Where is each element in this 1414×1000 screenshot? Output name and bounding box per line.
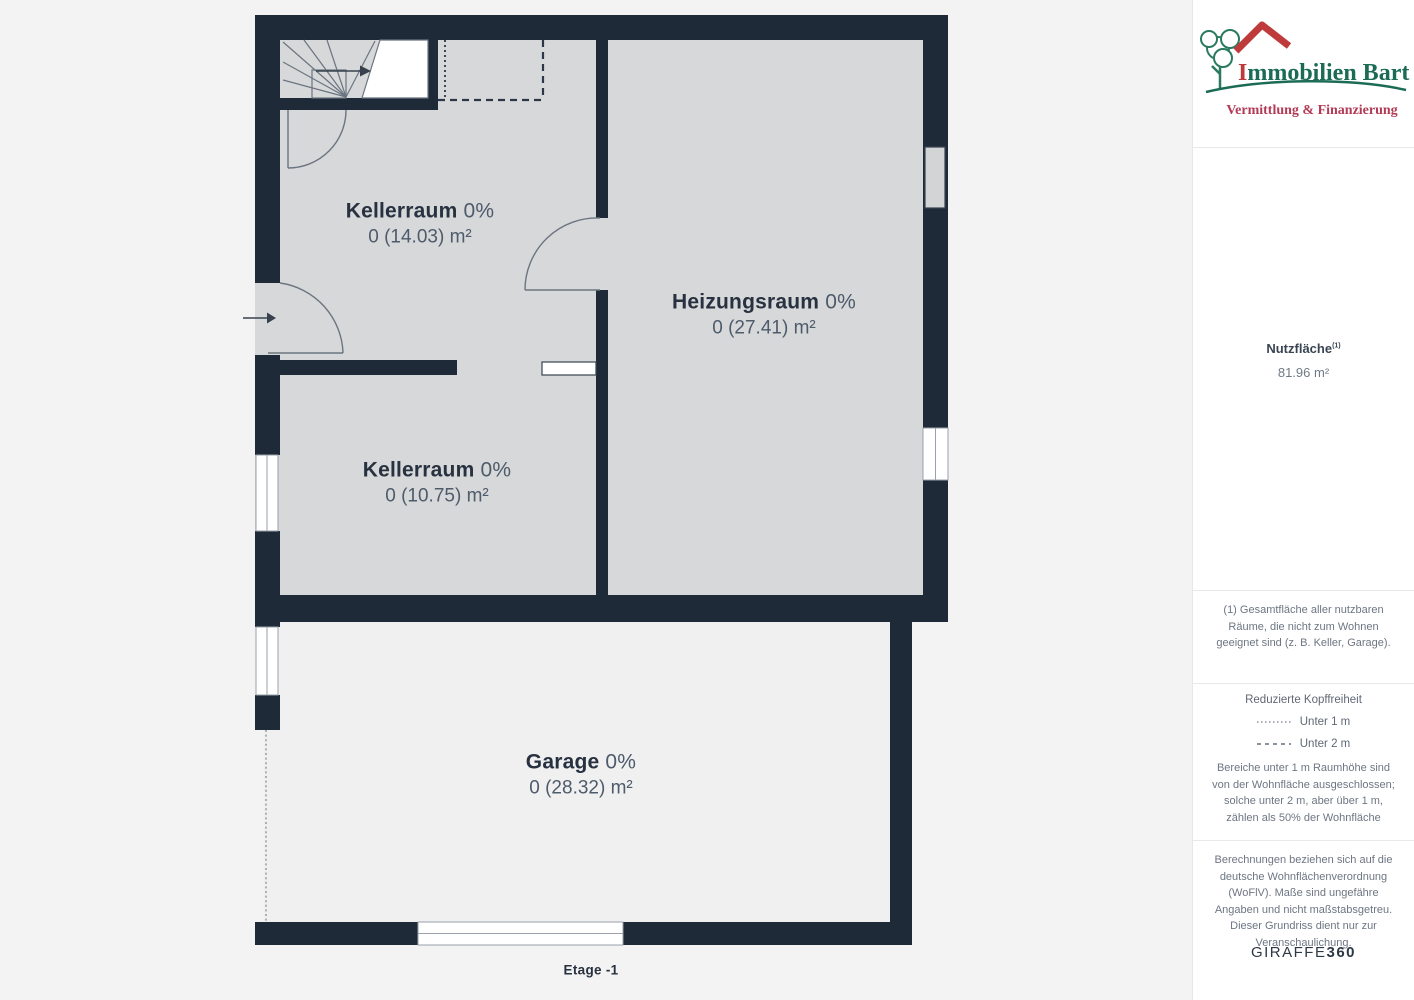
area-summary: Nutzfläche(1) 81.96 m²: [1193, 341, 1414, 380]
divider: [1193, 147, 1414, 148]
room-label-kellerraum-1: Kellerraum 0% 0 (14.03) m²: [346, 200, 495, 249]
page: Kellerraum 0% 0 (14.03) m² Heizungsraum …: [0, 0, 1414, 1000]
room-label-garage: Garage 0% 0 (28.32) m²: [526, 751, 636, 800]
agency-logo: Immobilien Bart Vermittlung & Finanzieru…: [1193, 8, 1414, 143]
disclaimer: Berechnungen beziehen sich auf die deuts…: [1207, 852, 1400, 951]
divider: [1193, 840, 1414, 841]
area-footnote: (1) Gesamtfläche aller nutzbaren Räume, …: [1207, 602, 1400, 652]
area-label: Nutzfläche(1): [1193, 341, 1414, 356]
area-value: 81.96 m²: [1193, 365, 1414, 380]
agency-subtitle: Vermittlung & Finanzierung: [1226, 103, 1397, 118]
info-sidebar: Immobilien Bart Vermittlung & Finanzieru…: [1192, 0, 1414, 1000]
dotted-line-icon: [1257, 720, 1291, 724]
dashed-line-icon: [1257, 742, 1291, 746]
room-label-kellerraum-2: Kellerraum 0% 0 (10.75) m²: [363, 459, 512, 508]
floorplan-drawing: [0, 0, 1192, 1000]
room-label-heizungsraum: Heizungsraum 0% 0 (27.41) m²: [672, 291, 856, 340]
legend-item-under-1m: Unter 1 m: [1193, 716, 1414, 728]
legend-note: Bereiche unter 1 m Raumhöhe sind von der…: [1207, 760, 1400, 826]
giraffe360-logo: GIRAFFE360: [1193, 944, 1414, 961]
legend-title: Reduzierte Kopffreiheit: [1193, 694, 1414, 706]
interior-wall-opening: [542, 362, 596, 375]
tree-icon: [1201, 30, 1239, 88]
divider: [1193, 683, 1414, 684]
legend-item-under-2m: Unter 2 m: [1193, 738, 1414, 750]
wall-niche: [925, 147, 945, 208]
roof-icon: [1236, 25, 1289, 51]
floorplan-canvas: Kellerraum 0% 0 (14.03) m² Heizungsraum …: [0, 0, 1192, 1000]
agency-logo-graphic: Immobilien Bart Vermittlung & Finanzieru…: [1194, 8, 1414, 138]
floor-label: Etage -1: [564, 963, 619, 978]
divider: [1193, 590, 1414, 591]
